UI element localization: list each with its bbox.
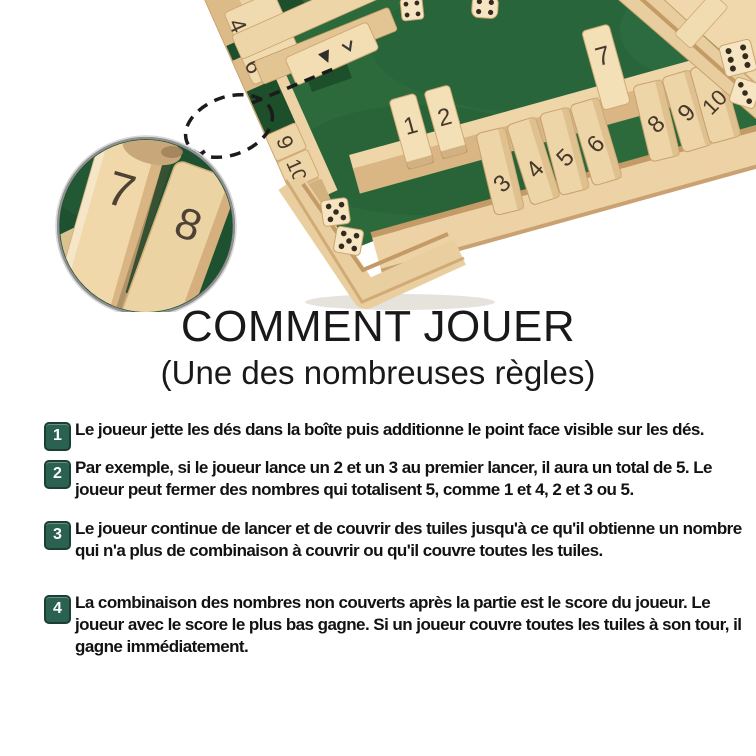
instruction-steps: 1 Le joueur jette les dés dans la boîte … <box>44 419 748 658</box>
die <box>400 0 424 21</box>
step-text: Par exemple, si le joueur lance un 2 et … <box>75 457 748 501</box>
die <box>320 197 350 227</box>
step-number-badge: 3 <box>44 521 71 550</box>
step-text: Le joueur continue de lancer et de couvr… <box>75 518 748 562</box>
step-text: La combinaison des nombres non couverts … <box>75 592 748 658</box>
step-text: Le joueur jette les dés dans la boîte pu… <box>75 419 748 441</box>
step-4: 4 La combinaison des nombres non couvert… <box>44 592 748 658</box>
die-face <box>400 0 424 21</box>
die <box>333 226 364 256</box>
step-3: 3 Le joueur continue de lancer et de cou… <box>44 518 748 562</box>
page-subtitle: (Une des nombreuses règles) <box>0 354 756 392</box>
step-2: 2 Par exemple, si le joueur lance un 2 e… <box>44 457 748 501</box>
wood-piece <box>161 146 183 158</box>
page-title: COMMENT JOUER <box>0 302 756 352</box>
magnifier-circle: 7 8 <box>0 107 239 312</box>
die-face <box>471 0 498 19</box>
step-1: 1 Le joueur jette les dés dans la boîte … <box>44 419 748 441</box>
die <box>471 0 498 19</box>
step-number-badge: 2 <box>44 460 71 489</box>
title-block: COMMENT JOUER (Une des nombreuses règles… <box>0 302 756 392</box>
step-number-badge: 1 <box>44 422 71 451</box>
product-photo: 4 6 9 10 <box>0 0 756 312</box>
step-number-badge: 4 <box>44 595 71 624</box>
